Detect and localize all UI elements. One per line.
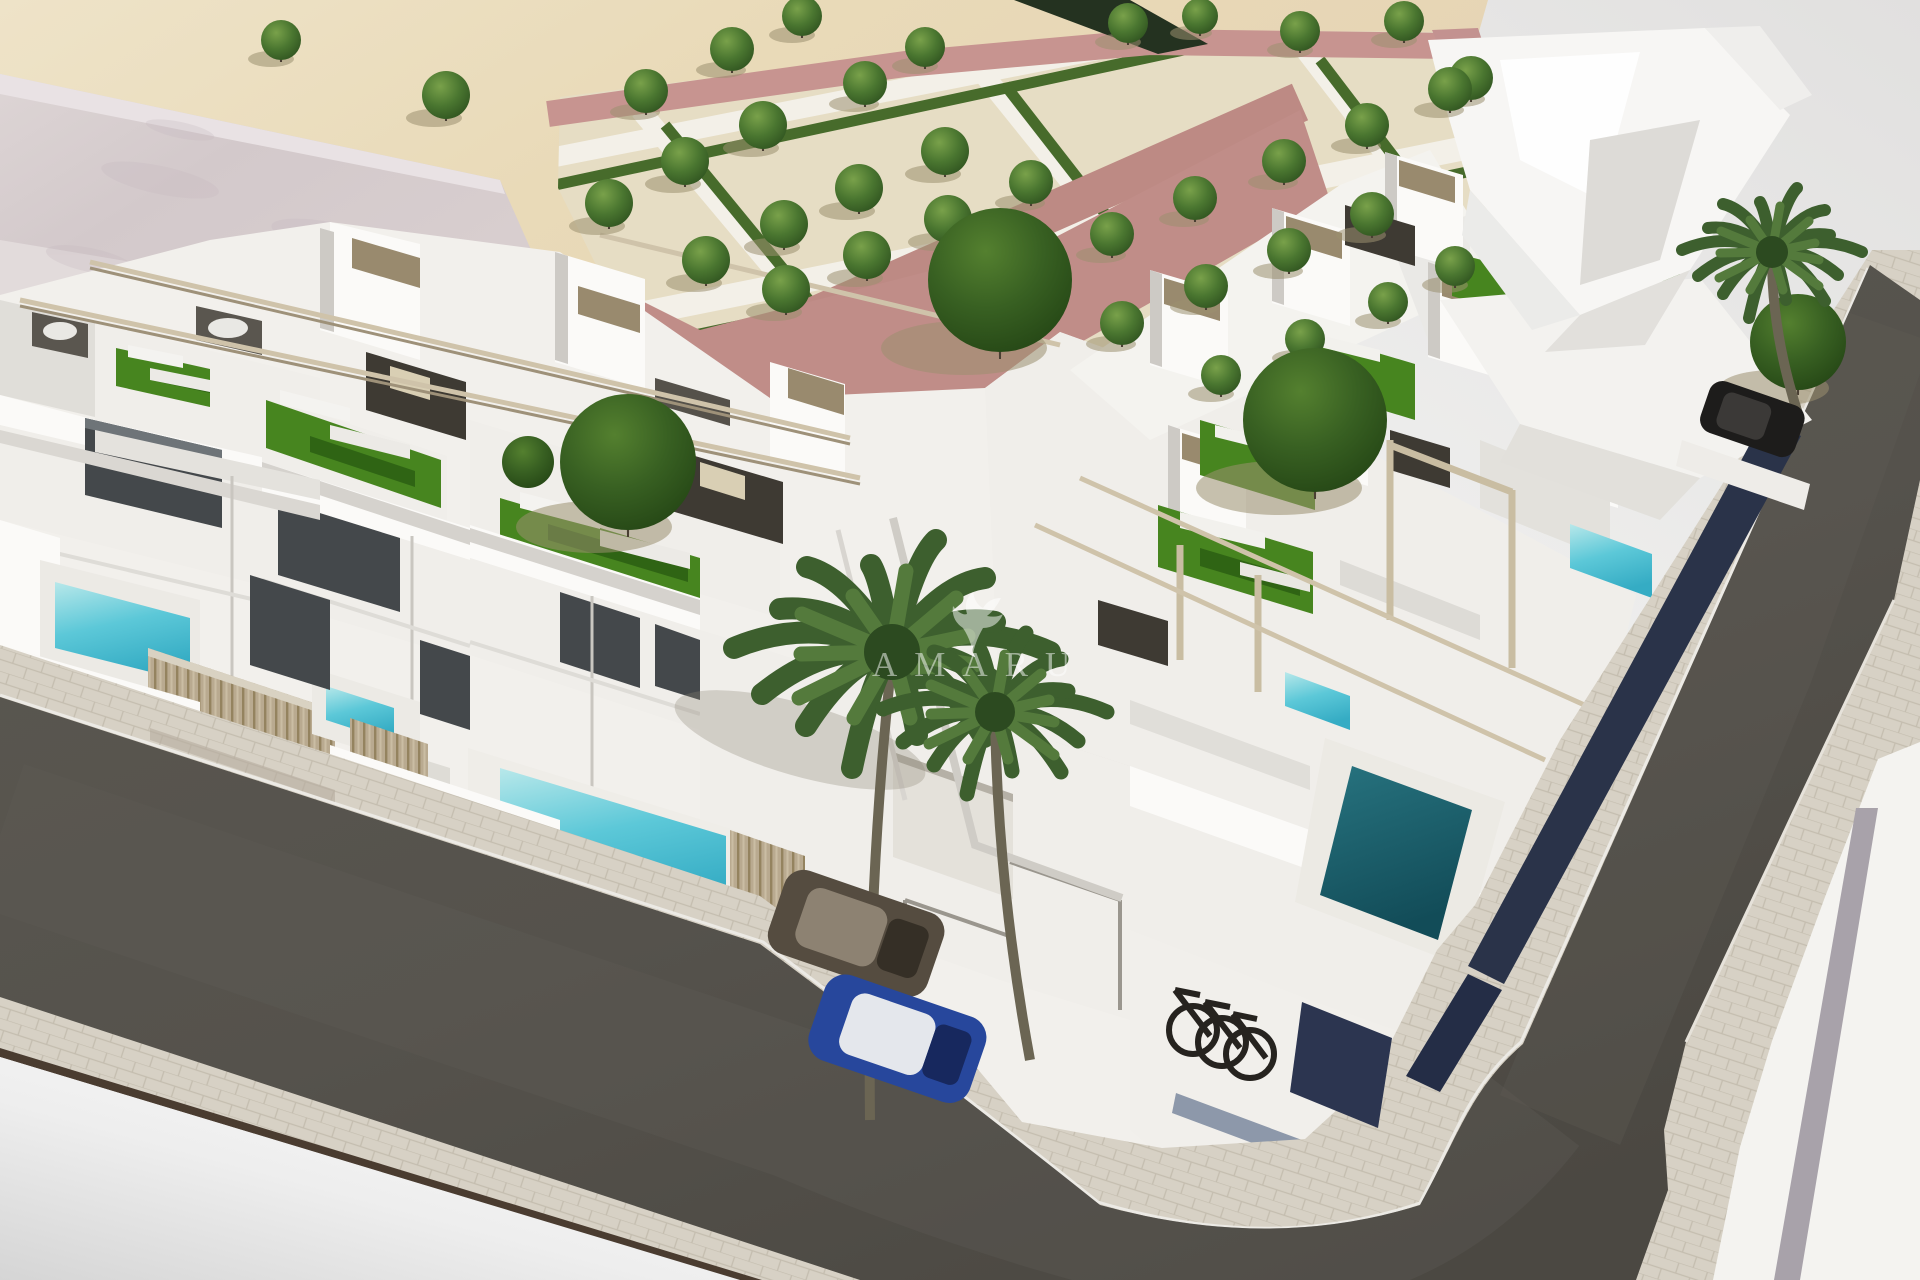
svg-text:AMARU: AMARU <box>872 645 1087 684</box>
